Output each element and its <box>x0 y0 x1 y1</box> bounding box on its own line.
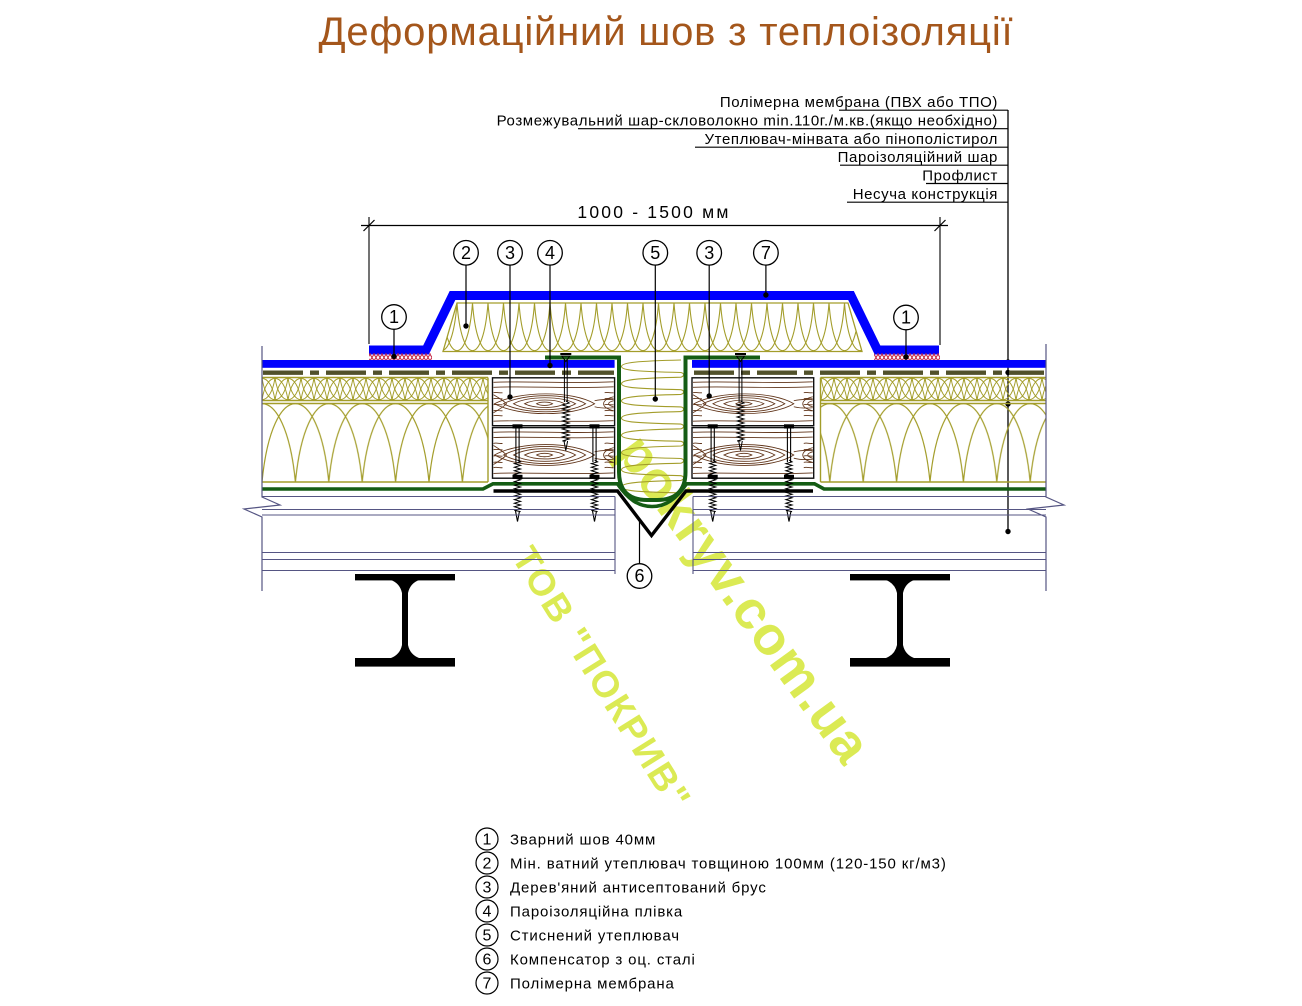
svg-text:7: 7 <box>761 243 771 263</box>
svg-text:Полімерна мембрана: Полімерна мембрана <box>510 976 675 993</box>
svg-text:Мін. ватний утеплювач товщиною: Мін. ватний утеплювач товщиною 100мм (12… <box>510 856 947 873</box>
svg-text:4: 4 <box>483 904 492 921</box>
svg-text:3: 3 <box>704 243 714 263</box>
svg-text:7: 7 <box>483 976 492 993</box>
svg-text:3: 3 <box>505 243 515 263</box>
svg-text:Розмежувальний шар-скловолокно: Розмежувальний шар-скловолокно min.110г.… <box>497 113 998 130</box>
svg-text:Пароізоляційна плівка: Пароізоляційна плівка <box>510 904 683 921</box>
svg-text:2: 2 <box>483 856 492 873</box>
svg-text:Зварний шов 40мм: Зварний шов 40мм <box>510 832 656 849</box>
svg-text:Утеплювач-мінвата або пінополі: Утеплювач-мінвата або пінополістирол <box>705 131 998 148</box>
svg-text:Деформаційний шов з теплоізоля: Деформаційний шов з теплоізоляції <box>319 10 1014 54</box>
svg-text:Несуча конструкція: Несуча конструкція <box>853 186 998 203</box>
svg-text:5: 5 <box>650 243 660 263</box>
svg-text:Профлист: Профлист <box>922 167 998 184</box>
svg-text:1: 1 <box>483 832 492 849</box>
svg-text:Дерев'яний антисептований брус: Дерев'яний антисептований брус <box>510 880 767 897</box>
svg-text:1: 1 <box>389 307 399 327</box>
svg-text:Пароізоляційний шар: Пароізоляційний шар <box>838 149 998 166</box>
svg-text:5: 5 <box>483 928 492 945</box>
svg-text:1: 1 <box>901 308 911 328</box>
svg-text:2: 2 <box>461 243 471 263</box>
svg-text:6: 6 <box>483 952 492 969</box>
svg-text:3: 3 <box>483 880 492 897</box>
svg-text:Стиснений утеплювач: Стиснений утеплювач <box>510 928 680 945</box>
svg-text:4: 4 <box>545 243 555 263</box>
svg-text:6: 6 <box>634 566 644 586</box>
svg-text:Полімерна мембрана (ПВХ або ТП: Полімерна мембрана (ПВХ або ТПО) <box>720 94 998 111</box>
svg-text:1000 - 1500 мм: 1000 - 1500 мм <box>577 202 730 222</box>
svg-text:Компенсатор з оц. сталі: Компенсатор з оц. сталі <box>510 952 696 969</box>
